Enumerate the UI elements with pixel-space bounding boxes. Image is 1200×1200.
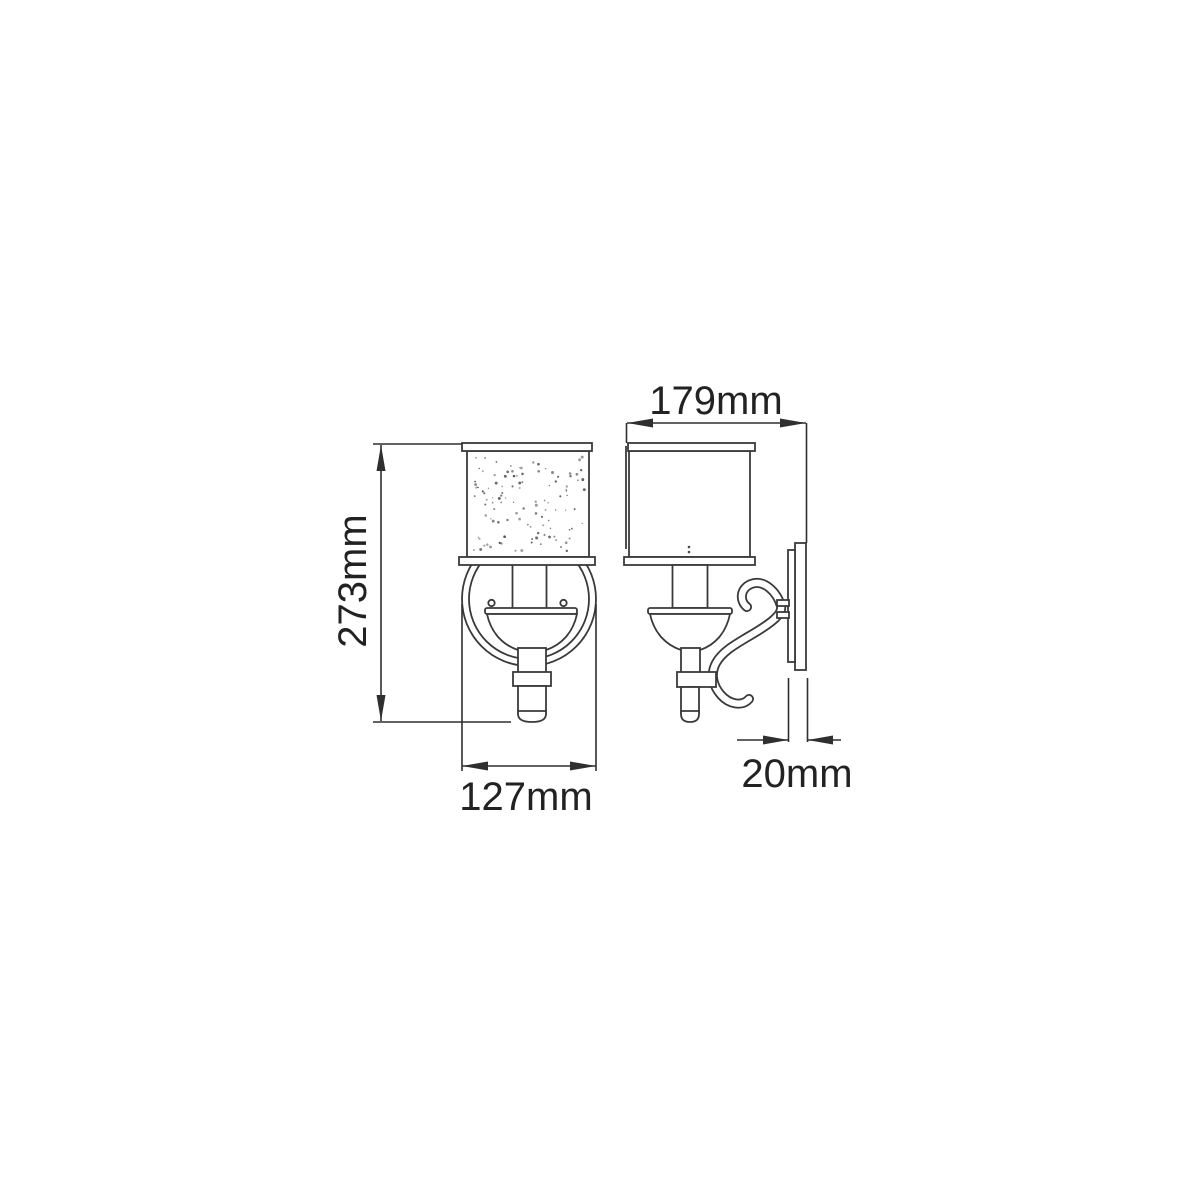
seed-dot [493,508,495,510]
front-candle-assembly [485,565,577,722]
seed-dot [571,528,573,530]
seed-dot [581,478,584,481]
seed-dot [483,545,485,547]
seed-dot [514,550,516,552]
seed-dot [503,535,506,538]
seed-dot [582,523,583,524]
seed-dot [513,475,516,478]
front-stem [518,648,546,673]
seed-dot [511,485,513,487]
seed-dot [555,480,557,482]
seed-dot [557,476,559,478]
arrow-left-icon [462,762,488,771]
seed-dot [520,467,523,470]
seed-dot [506,519,508,521]
seed-dot [486,499,488,501]
seed-dot [518,518,521,521]
seed-dot [521,473,524,476]
seed-dot [537,470,540,473]
seed-dot [497,521,500,524]
seed-dot [547,502,548,503]
seed-dot [505,497,507,499]
seed-dot [531,542,533,544]
seed-dot [530,526,532,528]
front-shade [459,443,595,565]
seed-dot [550,528,551,529]
mount-bracket-top-tab [777,600,789,606]
seed-dot [479,548,482,551]
seed-dot [513,502,514,503]
seed-dot [577,479,578,480]
seed-dot [522,507,524,509]
side-stem-support [673,565,708,608]
side-stem [681,648,700,673]
seed-dot [531,538,533,540]
seed-dot [500,494,502,496]
front-bottom-cap [518,711,546,722]
mount-bracket-bottom-tab [777,612,789,618]
seed-dot [498,497,501,500]
seed-dot [485,514,488,517]
front-trumpet [487,614,577,650]
dimension-backplate: 20mm [737,678,853,796]
arrow-down-icon [377,695,386,721]
height-dim-label: 273mm [331,514,375,647]
seed-dot [540,543,542,545]
seed-dot [475,457,476,458]
seed-dot [549,485,550,486]
seed-dot [555,539,557,541]
seed-dot [565,489,567,491]
seed-dot [560,546,562,548]
seed-dot [511,470,514,473]
seed-dot [494,474,496,476]
seed-dot [569,472,572,475]
front-socket-band [513,672,551,686]
side-trumpet [650,614,730,650]
seed-dot [501,492,503,494]
seed-dot [565,541,568,544]
seed-dot [569,475,571,477]
seed-dot [559,495,561,497]
seed-dot [569,529,571,531]
seed-dot [482,490,484,492]
arrow-right-icon [763,736,789,745]
seed-dot [545,468,547,470]
seed-dot [483,492,485,494]
seed-dot [477,487,479,489]
seed-dot [574,508,576,510]
seed-dot [566,495,567,496]
seed-dot [541,516,543,518]
seed-dot [553,536,555,538]
seed-dot [500,542,502,544]
seed-dot [688,546,691,549]
seed-dot [489,546,492,549]
seed-dot [515,512,518,515]
seed-dot [506,471,509,474]
seed-dot [566,490,568,492]
wall-sconce-dimension-drawing: 273mm 127mm 179mm 20mm [0,0,1200,1200]
arrow-right-icon [780,419,806,428]
side-lower-tube [681,687,699,713]
seed-dot [492,502,494,504]
seed-dot [535,537,538,540]
seed-dot [519,467,520,468]
seed-dot [518,482,521,485]
backplate-side-profile [795,543,806,670]
seed-dot [510,465,512,467]
seed-dot [548,536,551,539]
seed-dot [535,512,538,515]
front-screw-right [560,600,566,606]
front-shade-bottom-rim [459,557,595,565]
seed-dot [580,469,582,471]
seed-dot [548,520,549,521]
seed-dot [501,486,503,488]
seed-dot [484,504,486,506]
side-backplate [777,543,806,670]
seed-dot [543,534,545,536]
seed-dot [566,550,568,552]
seed-dot [486,543,489,546]
seed-dot [555,509,556,510]
seed-dot [474,495,476,497]
side-shade-body [629,451,750,557]
side-shade-bottom-rim [624,557,755,565]
seed-dot [504,475,507,478]
seed-dot [473,549,475,551]
seed-dot [545,509,547,511]
side-scroll-arm-outer [713,583,781,704]
side-socket-band [677,672,716,687]
arrow-left-icon [808,736,834,745]
seed-dot [475,487,477,489]
seed-dot [576,473,579,476]
seed-dot [544,500,546,502]
seed-dot [566,485,568,487]
seed-dot [519,487,521,489]
seed-dot [551,471,554,474]
seed-dot [527,524,529,526]
seed-dot [495,482,498,485]
seed-dot [474,483,477,486]
seed-dot [535,501,537,503]
front-shade-top-rim [462,443,592,451]
seed-dot [482,470,484,472]
backplate-dim-label: 20mm [741,752,852,796]
seed-dot [569,537,571,539]
seed-dot [532,461,534,463]
seed-dot [537,532,539,534]
seed-dot [490,518,492,520]
seed-dot [496,461,498,463]
seed-dot [492,520,495,523]
seed-dot [583,488,586,491]
seed-dot [542,524,544,526]
seed-dot [578,458,581,461]
seed-dot [537,463,540,466]
seed-dot [484,457,486,459]
seed-dot [492,497,494,499]
seed-dot [521,481,523,483]
projection-dim-label: 179mm [649,379,782,423]
seed-dot [479,538,481,540]
side-view [624,443,806,722]
seed-dot [500,501,502,503]
seed-dot [581,456,584,459]
seed-dot [479,468,480,469]
front-view [459,443,596,722]
seed-dot [535,504,538,507]
seed-dot [565,510,566,511]
side-shade [624,443,755,565]
side-shade-top-rim [628,443,755,451]
seed-dot [474,481,476,483]
front-screw-left [488,600,494,606]
front-lower-tube [518,686,546,713]
arrow-right-icon [570,762,596,771]
seed-dot [520,549,523,552]
seed-dot [488,488,489,489]
arrow-up-icon [377,445,386,471]
technical-drawing-page: 273mm 127mm 179mm 20mm [0,0,1200,1200]
side-bottom-cap [681,711,699,722]
seed-dot [688,551,691,554]
side-scroll-arm [713,583,781,704]
seed-dot [516,475,518,477]
width-dim-label: 127mm [459,775,592,819]
